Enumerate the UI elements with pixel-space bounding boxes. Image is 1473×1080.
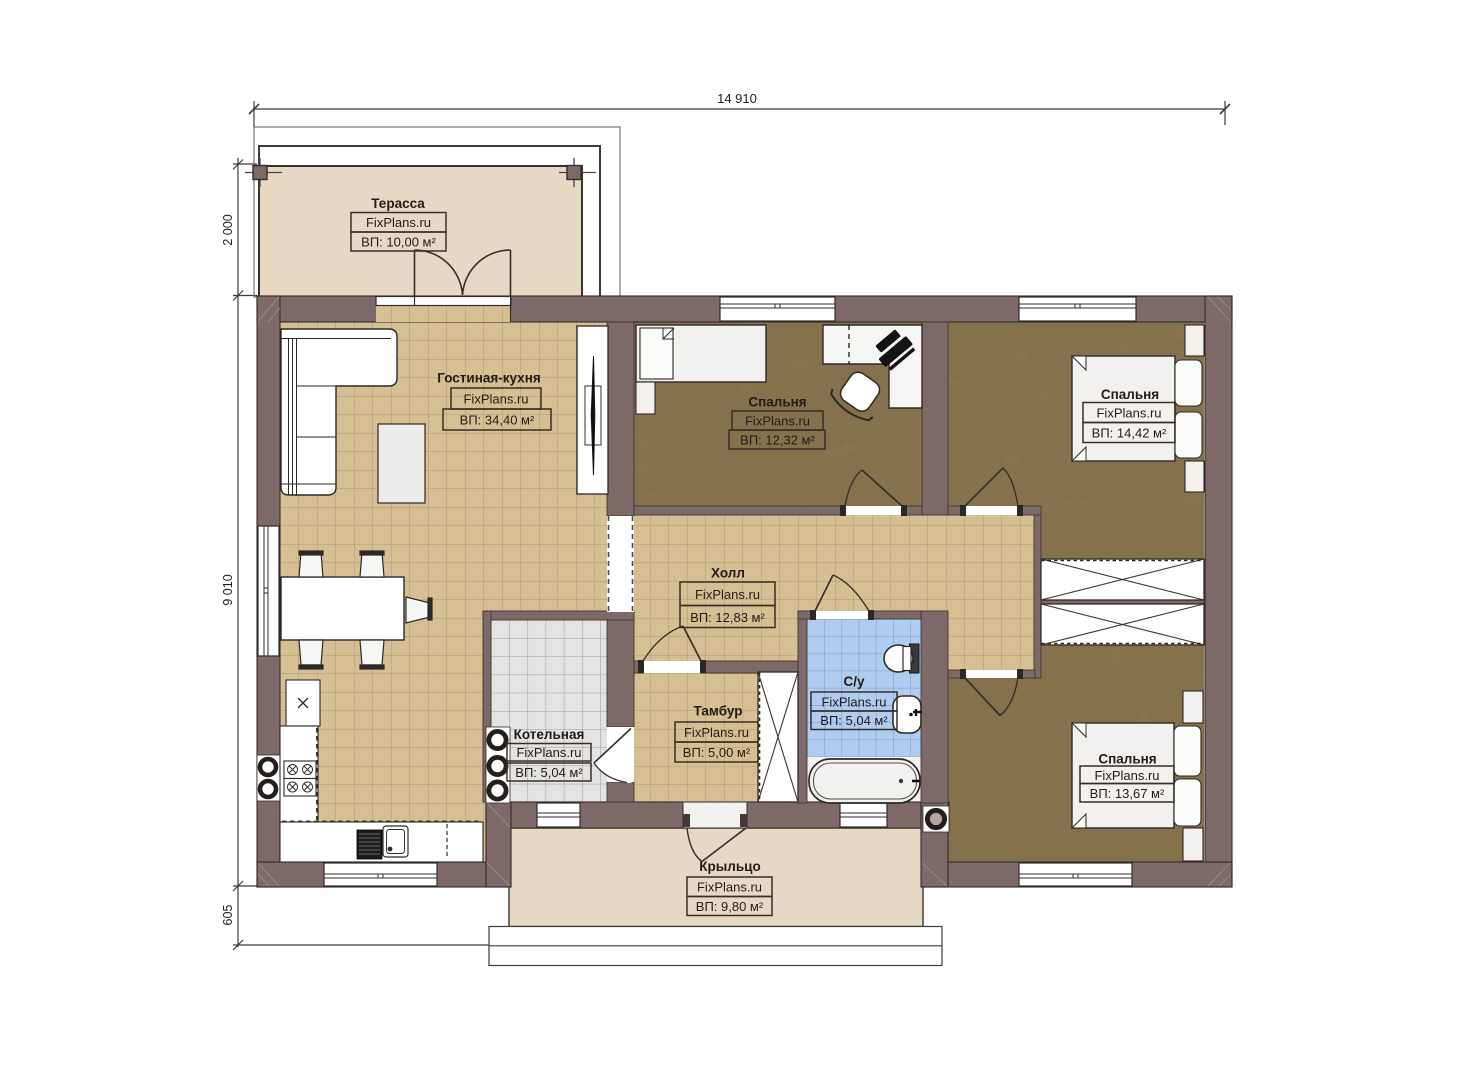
svg-text:ВП: 5,04 м²: ВП: 5,04 м² [515,765,583,780]
svg-text:ВП: 12,32 м²: ВП: 12,32 м² [740,433,815,448]
svg-text:ВП: 13,67 м²: ВП: 13,67 м² [1090,786,1165,801]
svg-text:Терасса: Терасса [371,196,425,211]
svg-text:FixPlans.ru: FixPlans.ru [821,695,886,710]
svg-text:2 000: 2 000 [221,214,235,245]
svg-text:FixPlans.ru: FixPlans.ru [697,880,762,895]
svg-text:Крыльцо: Крыльцо [699,859,760,874]
svg-text:FixPlans.ru: FixPlans.ru [684,725,749,740]
svg-text:14 910: 14 910 [717,91,757,106]
svg-text:ВП: 12,83 м²: ВП: 12,83 м² [690,610,765,625]
svg-text:FixPlans.ru: FixPlans.ru [516,745,581,760]
svg-text:ВП: 5,00 м²: ВП: 5,00 м² [683,745,751,760]
svg-text:Спальня: Спальня [1098,752,1156,767]
svg-text:ВП: 5,04 м²: ВП: 5,04 м² [820,713,888,728]
svg-text:ВП: 14,42 м²: ВП: 14,42 м² [1092,426,1167,441]
svg-text:Холл: Холл [711,566,745,581]
svg-text:ВП: 10,00 м²: ВП: 10,00 м² [361,235,436,250]
svg-text:FixPlans.ru: FixPlans.ru [745,414,810,429]
svg-text:С/у: С/у [843,674,865,689]
svg-text:9 010: 9 010 [221,574,235,605]
svg-text:FixPlans.ru: FixPlans.ru [1096,406,1161,421]
svg-text:Спальня: Спальня [1101,387,1159,402]
svg-text:ВП: 9,80 м²: ВП: 9,80 м² [696,899,764,914]
svg-text:FixPlans.ru: FixPlans.ru [463,392,528,407]
svg-text:Гостиная-кухня: Гостиная-кухня [437,371,540,386]
svg-text:FixPlans.ru: FixPlans.ru [1094,768,1159,783]
svg-text:Спальня: Спальня [748,395,806,410]
svg-text:Тамбур: Тамбур [694,704,743,719]
svg-text:Котельная: Котельная [514,727,585,742]
svg-text:FixPlans.ru: FixPlans.ru [366,215,431,230]
svg-text:605: 605 [221,905,235,926]
svg-text:ВП: 34,40 м²: ВП: 34,40 м² [460,413,535,428]
svg-text:FixPlans.ru: FixPlans.ru [695,587,760,602]
